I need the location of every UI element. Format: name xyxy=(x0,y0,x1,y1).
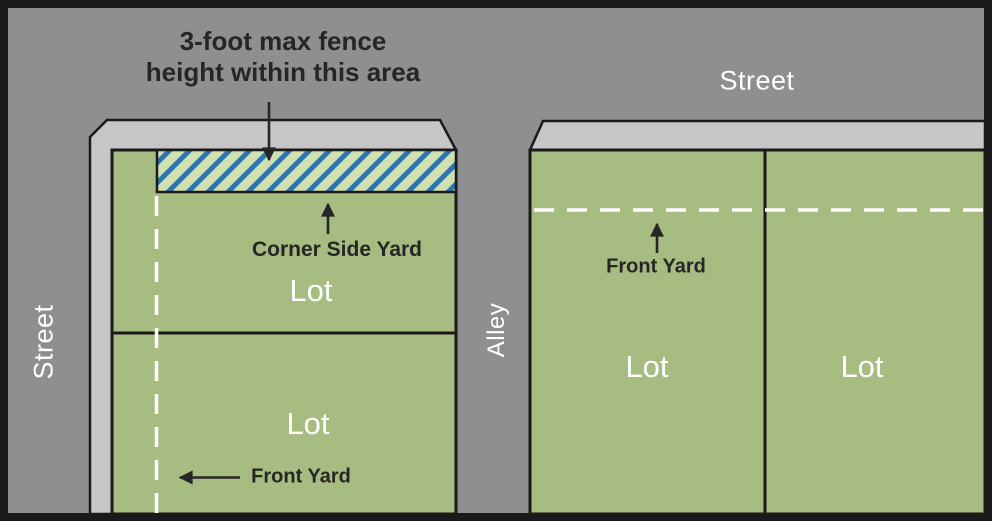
street-label-top: Street xyxy=(719,66,794,97)
fence-restriction-hatch xyxy=(157,150,456,192)
right-block-sidewalk xyxy=(530,121,985,150)
lot-label: Lot xyxy=(840,349,883,385)
fence-height-note-line1: 3-foot max fence xyxy=(133,26,433,57)
lot-label: Lot xyxy=(625,349,668,385)
fence-height-note-line2: height within this area xyxy=(133,57,433,88)
lot-label: Lot xyxy=(289,273,332,309)
fence-height-note: 3-foot max fence height within this area xyxy=(133,26,433,88)
right-lot-east xyxy=(765,150,985,514)
zoning-diagram: 3-foot max fence height within this area… xyxy=(0,0,997,529)
front-yard-label-left: Front Yard xyxy=(251,466,351,489)
right-lot-west xyxy=(530,150,765,514)
alley-label: Alley xyxy=(483,303,511,358)
front-yard-label-right: Front Yard xyxy=(606,256,706,279)
corner-side-yard-label: Corner Side Yard xyxy=(252,238,422,262)
lot-label: Lot xyxy=(286,406,329,442)
street-label-left: Street xyxy=(29,304,60,379)
